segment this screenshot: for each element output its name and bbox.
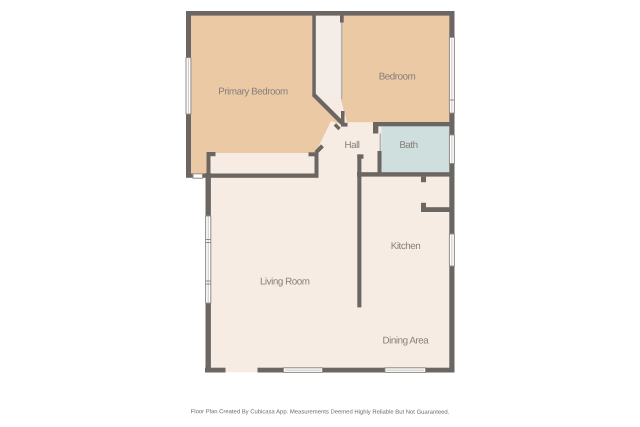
- svg-text:Dining Area: Dining Area: [383, 335, 430, 346]
- svg-text:Primary Bedroom: Primary Bedroom: [218, 86, 288, 97]
- svg-text:Hall: Hall: [344, 140, 359, 151]
- svg-text:Living Room: Living Room: [260, 276, 310, 287]
- svg-text:Bedroom: Bedroom: [379, 71, 416, 82]
- svg-text:Floor Plan Created By Cubicasa: Floor Plan Created By Cubicasa App. Meas…: [191, 409, 450, 416]
- svg-text:Kitchen: Kitchen: [391, 241, 421, 252]
- svg-text:Bath: Bath: [399, 140, 417, 151]
